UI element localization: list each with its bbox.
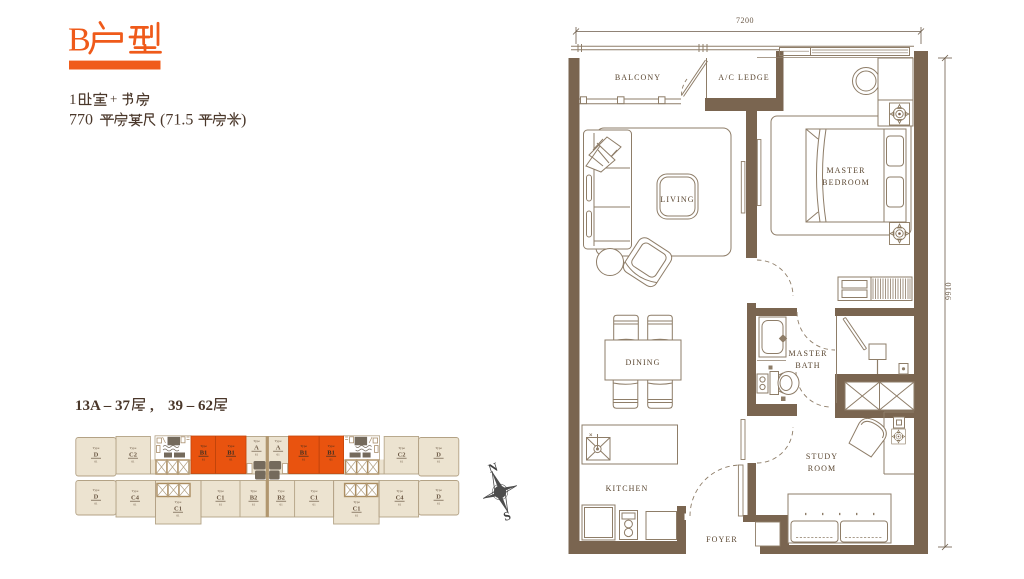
svg-text:Type: Type [175, 500, 182, 504]
svg-text:ROOM: ROOM [808, 464, 836, 473]
svg-text:C1: C1 [353, 506, 361, 513]
svg-text:61: 61 [400, 460, 404, 464]
svg-text:Type: Type [328, 444, 335, 448]
svg-text:A: A [276, 445, 281, 452]
svg-text:Type: Type [396, 489, 403, 493]
svg-text:Type: Type [253, 439, 260, 443]
svg-text:61: 61 [398, 503, 402, 507]
svg-text:C2: C2 [129, 452, 137, 459]
svg-text:61: 61 [133, 503, 137, 507]
svg-text:61: 61 [202, 458, 206, 462]
svg-text:61: 61 [437, 460, 441, 464]
svg-text:61: 61 [131, 460, 135, 464]
svg-text:B1: B1 [300, 450, 308, 457]
svg-text:B1: B1 [227, 450, 235, 457]
svg-text:MASTER: MASTER [788, 349, 827, 358]
svg-text:(71.5: (71.5 [160, 112, 193, 129]
svg-text:BALCONY: BALCONY [615, 73, 661, 82]
svg-text:61: 61 [330, 458, 334, 462]
svg-text:DINING: DINING [625, 358, 660, 367]
svg-text:Type: Type [217, 489, 224, 493]
svg-text:Type: Type [300, 444, 307, 448]
svg-text:61: 61 [355, 514, 359, 518]
svg-text:61: 61 [176, 514, 180, 518]
svg-text:): ) [241, 112, 246, 129]
svg-text:C2: C2 [398, 452, 406, 459]
svg-text:61: 61 [302, 458, 306, 462]
svg-text:1: 1 [69, 92, 77, 108]
svg-text:D: D [436, 494, 441, 501]
svg-text:C4: C4 [131, 495, 140, 502]
svg-text:9910: 9910 [944, 282, 953, 300]
svg-text:39 – 62: 39 – 62 [168, 398, 213, 414]
svg-text:7200: 7200 [736, 16, 754, 25]
svg-text:13A – 37: 13A – 37 [75, 398, 131, 414]
svg-text:Type: Type [228, 444, 235, 448]
svg-text:61: 61 [313, 503, 317, 507]
svg-text:Type: Type [278, 489, 285, 493]
svg-text:D: D [94, 494, 99, 501]
svg-text:Type: Type [275, 439, 282, 443]
svg-text:Type: Type [130, 446, 137, 450]
svg-text:Type: Type [353, 500, 360, 504]
svg-text:C1: C1 [217, 495, 225, 502]
svg-text:Type: Type [250, 489, 257, 493]
svg-text:D: D [436, 452, 441, 459]
svg-text:61: 61 [280, 503, 284, 507]
svg-text:BATH: BATH [795, 361, 820, 370]
svg-text:C4: C4 [396, 495, 405, 502]
svg-text:+: + [110, 91, 117, 106]
svg-text:Type: Type [435, 488, 442, 492]
svg-text:61: 61 [229, 458, 233, 462]
svg-text:Type: Type [93, 488, 100, 492]
svg-text:KITCHEN: KITCHEN [606, 484, 649, 493]
svg-text:61: 61 [277, 453, 281, 457]
svg-text:61: 61 [437, 502, 441, 506]
svg-text:MASTER: MASTER [826, 166, 865, 175]
svg-text:61: 61 [94, 502, 98, 506]
svg-text:Type: Type [132, 489, 139, 493]
svg-text:B1: B1 [327, 450, 335, 457]
svg-text:770: 770 [69, 112, 93, 129]
svg-text:61: 61 [219, 503, 223, 507]
svg-text:Type: Type [398, 446, 405, 450]
svg-text:Type: Type [200, 444, 207, 448]
svg-text:B2: B2 [277, 495, 285, 502]
svg-text:C1: C1 [174, 506, 182, 513]
svg-text:Type: Type [93, 446, 100, 450]
svg-text:61: 61 [94, 460, 98, 464]
svg-text:B2: B2 [250, 495, 258, 502]
svg-text:D: D [94, 452, 99, 459]
svg-text:61: 61 [255, 453, 259, 457]
svg-text:STUDY: STUDY [806, 452, 838, 461]
svg-text:61: 61 [252, 503, 256, 507]
svg-text:Type: Type [311, 489, 318, 493]
svg-text:B1: B1 [200, 450, 208, 457]
svg-text:A/C LEDGE: A/C LEDGE [718, 73, 769, 82]
svg-text:Type: Type [435, 446, 442, 450]
svg-text:,: , [150, 398, 154, 414]
svg-text:B: B [68, 22, 91, 59]
svg-text:LIVING: LIVING [660, 195, 694, 204]
svg-text:FOYER: FOYER [706, 535, 738, 544]
svg-text:C1: C1 [310, 495, 318, 502]
svg-text:BEDROOM: BEDROOM [822, 178, 870, 187]
svg-text:A: A [254, 445, 259, 452]
